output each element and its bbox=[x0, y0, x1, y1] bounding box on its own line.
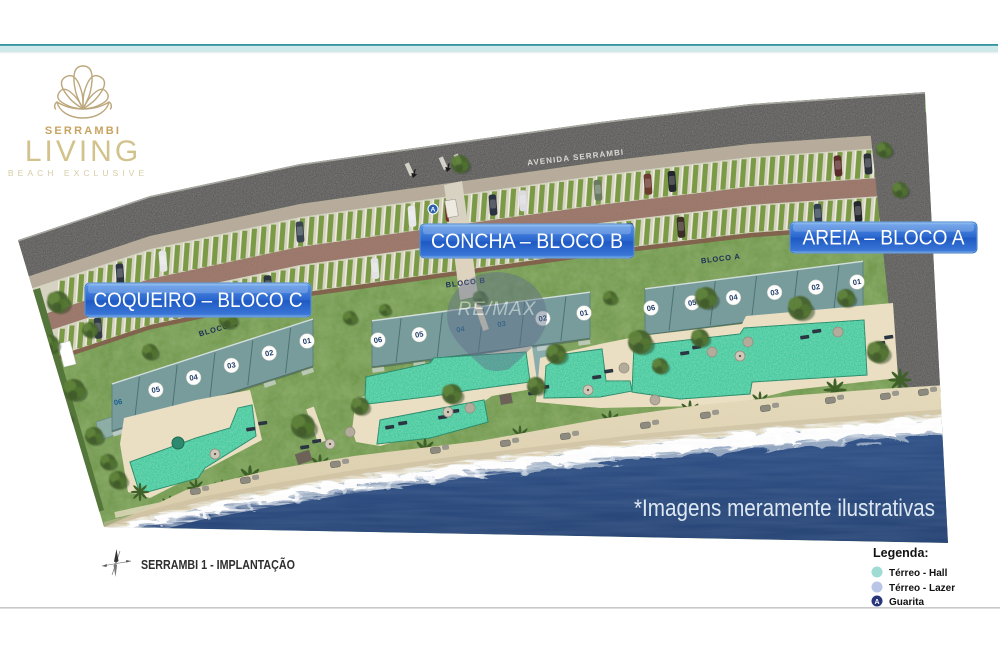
svg-text:CONCHA – BLOCO B: CONCHA – BLOCO B bbox=[431, 230, 623, 253]
svg-text:A: A bbox=[431, 207, 436, 214]
svg-text:BEACH EXCLUSIVE: BEACH EXCLUSIVE bbox=[8, 168, 148, 178]
svg-text:02: 02 bbox=[811, 282, 821, 292]
svg-text:06: 06 bbox=[113, 397, 123, 407]
svg-text:COQUEIRO – BLOCO C: COQUEIRO – BLOCO C bbox=[94, 289, 303, 312]
svg-text:*Imagens meramente ilustrativa: *Imagens meramente ilustrativas bbox=[634, 495, 935, 522]
svg-text:Térreo - Lazer: Térreo - Lazer bbox=[889, 583, 955, 594]
svg-text:03: 03 bbox=[226, 360, 236, 370]
svg-text:06: 06 bbox=[646, 303, 656, 313]
svg-text:A: A bbox=[874, 599, 879, 606]
svg-text:Térreo - Hall: Térreo - Hall bbox=[889, 568, 948, 579]
svg-text:03: 03 bbox=[770, 287, 780, 297]
svg-text:Guarita: Guarita bbox=[889, 597, 924, 608]
svg-text:AREIA – BLOCO A: AREIA – BLOCO A bbox=[803, 227, 965, 250]
svg-text:SERRAMBI 1 - IMPLANTAÇÃO: SERRAMBI 1 - IMPLANTAÇÃO bbox=[141, 557, 295, 572]
svg-text:02: 02 bbox=[264, 348, 274, 358]
svg-text:RE/MAX: RE/MAX bbox=[458, 299, 537, 320]
svg-text:LIVING: LIVING bbox=[25, 135, 141, 168]
svg-text:Legenda:: Legenda: bbox=[873, 546, 929, 560]
svg-text:06: 06 bbox=[373, 335, 383, 345]
